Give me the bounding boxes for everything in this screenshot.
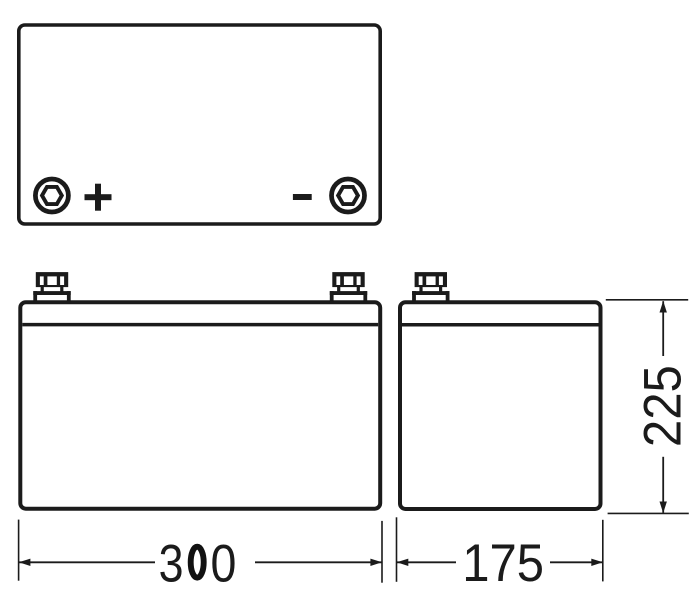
- svg-text:0: 0: [211, 535, 237, 594]
- svg-text:225: 225: [634, 365, 693, 447]
- svg-text:3: 3: [159, 535, 184, 594]
- svg-text:175: 175: [462, 534, 544, 593]
